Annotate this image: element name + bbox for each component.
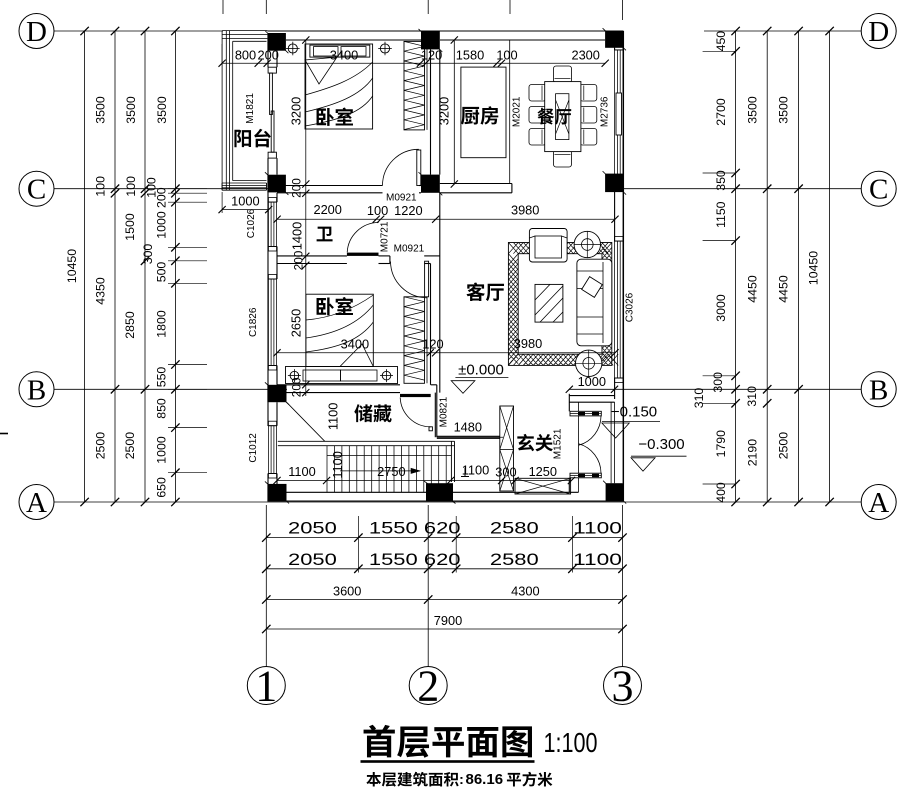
- svg-text:±0.000: ±0.000: [458, 362, 504, 379]
- svg-text:C: C: [869, 174, 888, 206]
- svg-text:1000: 1000: [155, 436, 169, 464]
- svg-text:C1826: C1826: [248, 307, 259, 337]
- svg-text:1: 1: [255, 662, 277, 711]
- svg-text:1220: 1220: [394, 203, 422, 218]
- svg-text:1000: 1000: [578, 374, 606, 389]
- svg-text:1250: 1250: [529, 464, 557, 479]
- svg-text:1100: 1100: [573, 520, 622, 538]
- svg-text:1550: 1550: [369, 551, 418, 569]
- svg-text:1000: 1000: [155, 211, 169, 239]
- svg-text:2580: 2580: [490, 551, 539, 569]
- svg-text:C: C: [27, 174, 46, 206]
- svg-text:A: A: [26, 487, 47, 519]
- svg-text:300: 300: [495, 464, 516, 479]
- svg-text:3500: 3500: [94, 96, 108, 124]
- svg-text:10450: 10450: [806, 251, 820, 285]
- svg-text:M0721: M0721: [379, 221, 390, 252]
- svg-text:310: 310: [692, 388, 706, 409]
- svg-text:M0821: M0821: [438, 396, 449, 427]
- svg-text:C1026: C1026: [246, 208, 257, 238]
- svg-text:2650: 2650: [289, 309, 304, 337]
- svg-text:1550: 1550: [369, 520, 418, 538]
- svg-text:3500: 3500: [124, 96, 138, 124]
- svg-text:2700: 2700: [714, 98, 728, 126]
- svg-text:3200: 3200: [289, 97, 304, 125]
- svg-text::: :: [459, 771, 464, 787]
- svg-text:3600: 3600: [333, 583, 361, 598]
- svg-text:D: D: [868, 16, 889, 48]
- svg-text:650: 650: [155, 477, 169, 498]
- svg-text:1480: 1480: [454, 420, 482, 435]
- svg-text:D: D: [26, 16, 47, 48]
- svg-text:4350: 4350: [94, 277, 108, 305]
- svg-text:2850: 2850: [123, 311, 137, 339]
- svg-text:200: 200: [155, 187, 169, 208]
- svg-text:400: 400: [714, 482, 728, 503]
- svg-text:3400: 3400: [341, 337, 369, 352]
- svg-text:3200: 3200: [437, 97, 452, 125]
- svg-text:1800: 1800: [155, 310, 169, 338]
- svg-text:100: 100: [496, 48, 517, 63]
- svg-text:4450: 4450: [746, 275, 760, 303]
- svg-text:200: 200: [290, 377, 304, 397]
- svg-text:2500: 2500: [777, 432, 791, 460]
- svg-text:450: 450: [714, 31, 728, 52]
- svg-text:100: 100: [367, 203, 388, 218]
- svg-text:3000: 3000: [714, 294, 728, 322]
- svg-text:B: B: [869, 374, 888, 406]
- svg-text:1790: 1790: [714, 430, 728, 458]
- svg-text:850: 850: [155, 398, 169, 419]
- svg-text:3980: 3980: [514, 336, 542, 351]
- svg-text:620: 620: [424, 520, 461, 538]
- svg-text:10450: 10450: [65, 249, 79, 283]
- svg-text:620: 620: [424, 551, 461, 569]
- svg-text:2300: 2300: [571, 48, 599, 63]
- svg-text:2190: 2190: [746, 439, 760, 467]
- svg-text:2580: 2580: [490, 520, 539, 538]
- svg-text:2500: 2500: [94, 432, 108, 460]
- svg-text:2200: 2200: [313, 202, 341, 217]
- svg-text:100: 100: [94, 176, 108, 197]
- svg-text:C1012: C1012: [248, 433, 259, 463]
- svg-text:500: 500: [155, 262, 169, 283]
- svg-text:1100: 1100: [573, 551, 622, 569]
- svg-text:86.16: 86.16: [466, 771, 504, 788]
- svg-text:−0.150: −0.150: [611, 404, 657, 421]
- svg-text:3500: 3500: [155, 96, 169, 124]
- svg-text:1500: 1500: [123, 213, 137, 241]
- svg-text:1150: 1150: [714, 201, 728, 228]
- svg-text:350: 350: [714, 170, 728, 191]
- svg-text:−0.300: −0.300: [638, 436, 684, 453]
- svg-text:1000: 1000: [231, 193, 259, 208]
- svg-text:3500: 3500: [777, 96, 791, 124]
- svg-text:3500: 3500: [746, 96, 760, 124]
- svg-text:1100: 1100: [288, 464, 316, 479]
- svg-text:M2736: M2736: [600, 96, 611, 127]
- svg-text:550: 550: [155, 367, 169, 388]
- svg-text:300: 300: [711, 372, 725, 393]
- svg-text:7900: 7900: [434, 613, 462, 628]
- svg-text:800: 800: [235, 48, 256, 63]
- svg-text:200: 200: [292, 250, 306, 270]
- svg-text:B: B: [27, 374, 46, 406]
- svg-text:1100: 1100: [326, 403, 341, 431]
- svg-text:1400: 1400: [290, 222, 305, 250]
- svg-text:2500: 2500: [123, 432, 137, 460]
- svg-text:M2021: M2021: [511, 96, 522, 127]
- svg-text:2050: 2050: [288, 520, 337, 538]
- svg-text:3: 3: [612, 662, 634, 711]
- svg-text:310: 310: [745, 386, 759, 407]
- svg-text:4450: 4450: [777, 275, 791, 303]
- svg-text:M0921: M0921: [394, 244, 425, 255]
- svg-text:120: 120: [422, 337, 443, 352]
- svg-text:1100: 1100: [330, 451, 345, 479]
- svg-text:1:100: 1:100: [544, 727, 598, 758]
- svg-text:300: 300: [141, 244, 155, 265]
- svg-text:M1521: M1521: [553, 428, 564, 459]
- svg-text:200: 200: [290, 178, 304, 198]
- svg-text:M1821: M1821: [245, 93, 256, 124]
- svg-text:2: 2: [417, 662, 439, 711]
- svg-text:3400: 3400: [330, 48, 358, 63]
- svg-text:M0921: M0921: [386, 193, 417, 204]
- svg-text:100: 100: [124, 176, 138, 197]
- svg-text:C3026: C3026: [625, 292, 636, 322]
- svg-text:4300: 4300: [511, 583, 539, 598]
- svg-text:2750: 2750: [377, 464, 405, 479]
- svg-text:1580: 1580: [456, 48, 484, 63]
- svg-text:3980: 3980: [511, 203, 539, 218]
- svg-text:1100: 1100: [462, 462, 490, 477]
- svg-text:200: 200: [258, 48, 279, 63]
- svg-text:120: 120: [421, 48, 442, 63]
- svg-text:2050: 2050: [288, 551, 337, 569]
- svg-text:A: A: [868, 487, 889, 519]
